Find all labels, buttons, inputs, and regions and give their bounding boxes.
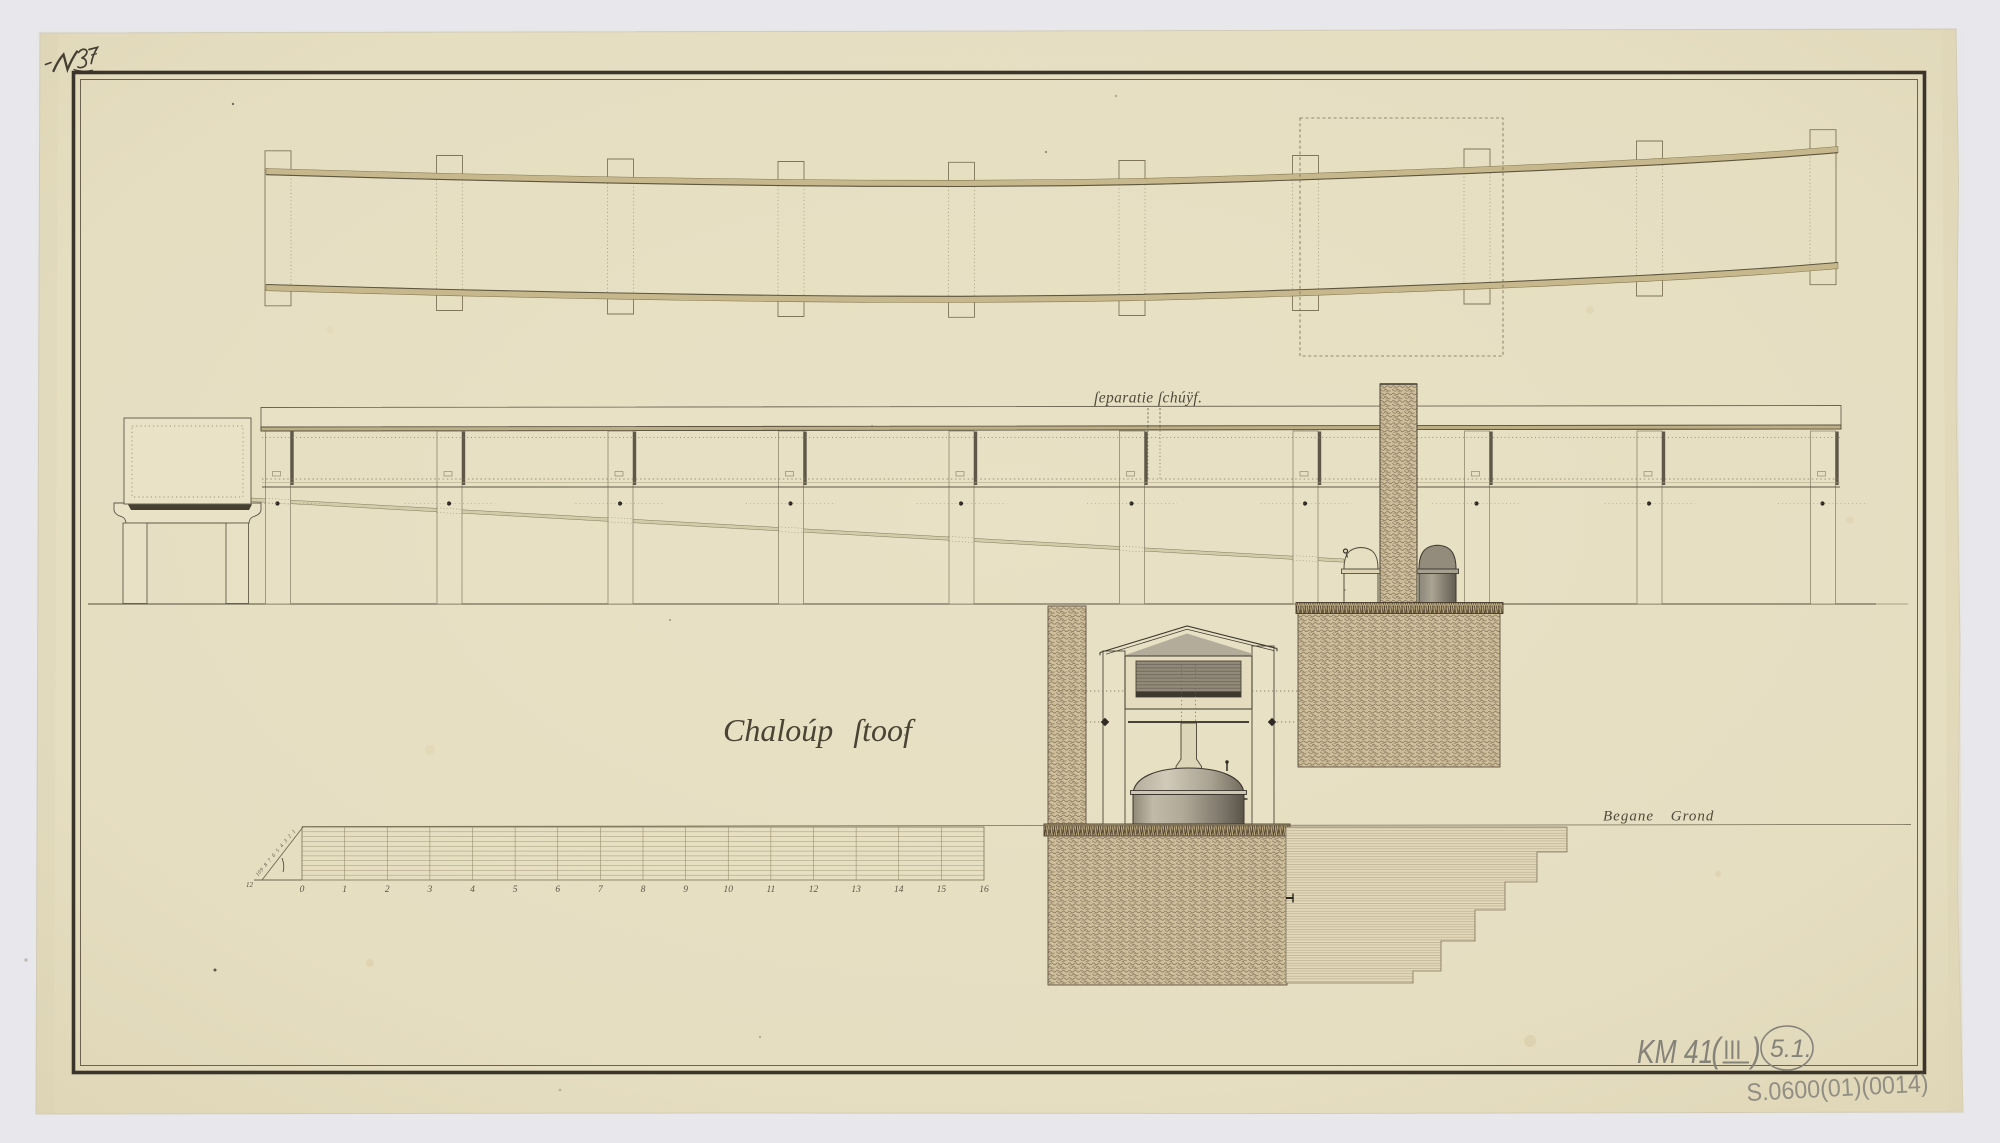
svg-text:13: 13	[851, 885, 861, 895]
svg-text:Begane Grond: Begane Grond	[1603, 809, 1714, 825]
svg-text:Chaloúp ſtoof: Chaloúp ſtoof	[723, 712, 916, 748]
svg-text:12: 12	[809, 885, 819, 895]
svg-text:5.1.: 5.1.	[1770, 1035, 1812, 1063]
svg-text:0: 0	[300, 885, 305, 895]
svg-text:3: 3	[427, 885, 433, 895]
svg-text:6: 6	[555, 885, 560, 895]
svg-text:16: 16	[979, 885, 989, 895]
svg-text:9: 9	[683, 885, 688, 895]
svg-text:2: 2	[385, 885, 390, 895]
svg-text:8: 8	[641, 885, 646, 895]
svg-text:14: 14	[894, 885, 904, 895]
svg-text:10: 10	[723, 885, 733, 895]
svg-text:ſeparatie ſchúÿf.: ſeparatie ſchúÿf.	[1094, 390, 1202, 407]
svg-text:5: 5	[513, 885, 518, 895]
svg-text:1: 1	[342, 885, 347, 895]
svg-text:4: 4	[470, 885, 475, 895]
svg-text:III: III	[1723, 1036, 1741, 1066]
svg-text:11: 11	[767, 885, 776, 895]
svg-text:KM 41: KM 41	[1637, 1034, 1713, 1070]
svg-text:12: 12	[246, 881, 254, 889]
svg-text:15: 15	[937, 885, 947, 895]
